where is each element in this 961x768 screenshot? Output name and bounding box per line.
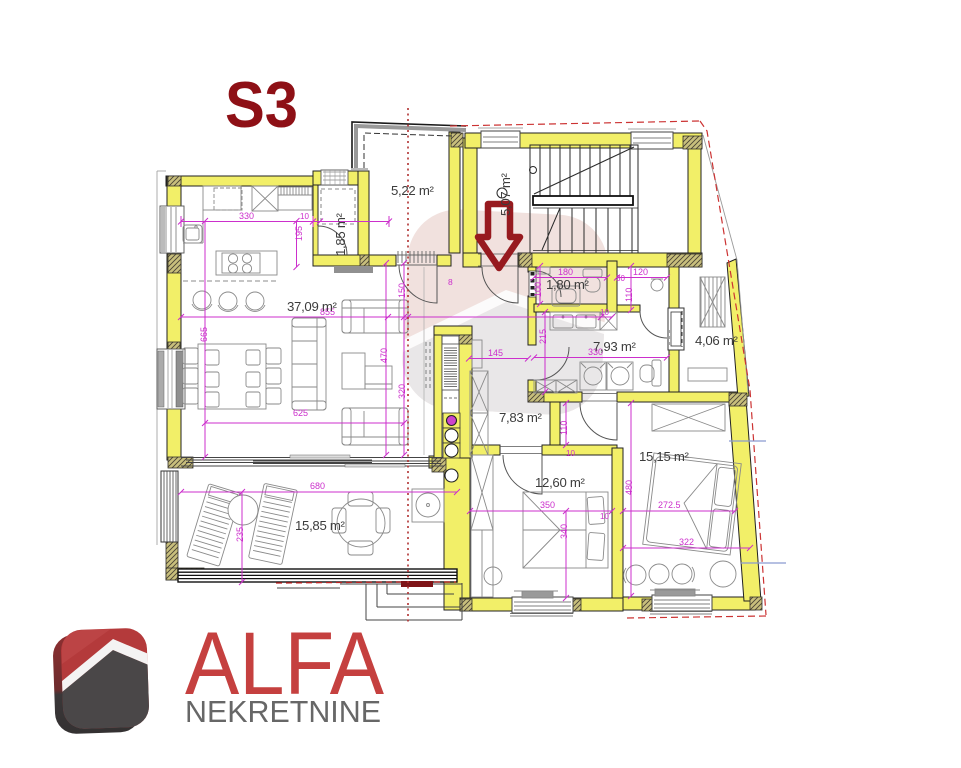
- svg-text:120: 120: [633, 267, 648, 277]
- svg-text:195: 195: [294, 226, 304, 241]
- svg-text:322: 322: [679, 537, 694, 547]
- svg-text:15,15 m²: 15,15 m²: [639, 449, 690, 464]
- svg-text:110: 110: [559, 421, 569, 435]
- svg-text:7,83 m²: 7,83 m²: [499, 410, 543, 425]
- svg-text:350: 350: [540, 500, 555, 510]
- svg-text:5,07 m²: 5,07 m²: [498, 172, 513, 216]
- svg-text:110: 110: [624, 288, 634, 302]
- svg-text:665: 665: [199, 327, 209, 342]
- svg-text:S3: S3: [225, 68, 298, 141]
- svg-text:180: 180: [558, 267, 573, 277]
- svg-text:NEKRETNINE: NEKRETNINE: [185, 694, 381, 729]
- svg-text:100: 100: [533, 282, 543, 297]
- svg-text:1,80 m²: 1,80 m²: [546, 277, 590, 292]
- svg-text:145: 145: [488, 348, 503, 358]
- svg-text:7,93 m²: 7,93 m²: [593, 339, 637, 354]
- svg-text:340: 340: [559, 524, 569, 539]
- svg-text:4,06 m²: 4,06 m²: [695, 333, 739, 348]
- svg-text:10: 10: [300, 212, 309, 221]
- svg-text:10: 10: [566, 449, 575, 458]
- svg-text:5,22 m²: 5,22 m²: [391, 183, 435, 198]
- svg-text:680: 680: [310, 481, 325, 491]
- svg-text:235: 235: [235, 527, 245, 542]
- svg-text:625: 625: [293, 408, 308, 418]
- svg-text:37,09 m²: 37,09 m²: [287, 299, 338, 314]
- svg-text:150: 150: [397, 283, 407, 298]
- svg-text:320: 320: [397, 384, 407, 399]
- svg-text:470: 470: [379, 348, 389, 363]
- svg-text:10: 10: [600, 308, 609, 317]
- svg-text:30: 30: [616, 274, 625, 283]
- svg-text:12,60 m²: 12,60 m²: [535, 475, 586, 490]
- svg-text:1,85 m²: 1,85 m²: [333, 212, 348, 256]
- svg-text:480: 480: [624, 480, 634, 495]
- svg-text:330: 330: [239, 211, 254, 221]
- svg-text:8: 8: [448, 277, 453, 287]
- svg-text:215: 215: [538, 329, 548, 344]
- svg-text:15,85 m²: 15,85 m²: [295, 518, 346, 533]
- svg-text:10: 10: [600, 512, 609, 521]
- svg-text:272.5: 272.5: [658, 500, 681, 510]
